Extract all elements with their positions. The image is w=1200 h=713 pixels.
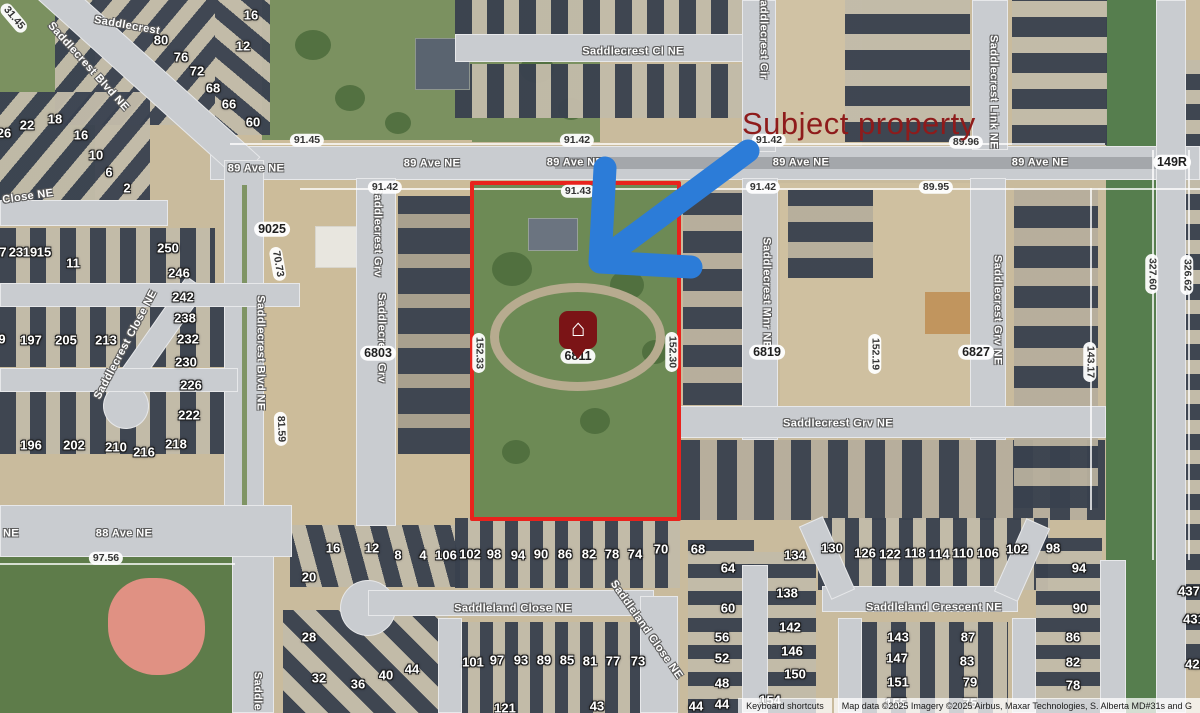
subject-property-pin[interactable]: ⌂ bbox=[559, 311, 597, 349]
subject-property-label: Subject property bbox=[742, 106, 976, 142]
address-label: 9025 bbox=[254, 222, 290, 237]
satellite-map[interactable]: SaddlecrestSaddlecrest Blvd NESaddlecres… bbox=[0, 0, 1200, 713]
house-icon: ⌂ bbox=[571, 317, 586, 341]
map-data-attribution: Map data ©2025 Imagery ©2025 Airbus, Max… bbox=[834, 698, 1200, 713]
address-label: 6819 bbox=[749, 345, 785, 360]
address-label-layer: 90256803681168196827149R bbox=[0, 0, 1200, 713]
address-label: 6827 bbox=[958, 345, 994, 360]
keyboard-shortcuts-button[interactable]: Keyboard shortcuts bbox=[738, 698, 832, 713]
map-attribution: Keyboard shortcuts Map data ©2025 Imager… bbox=[738, 698, 1200, 713]
address-label: 6803 bbox=[360, 346, 396, 361]
address-label: 149R bbox=[1153, 155, 1191, 170]
